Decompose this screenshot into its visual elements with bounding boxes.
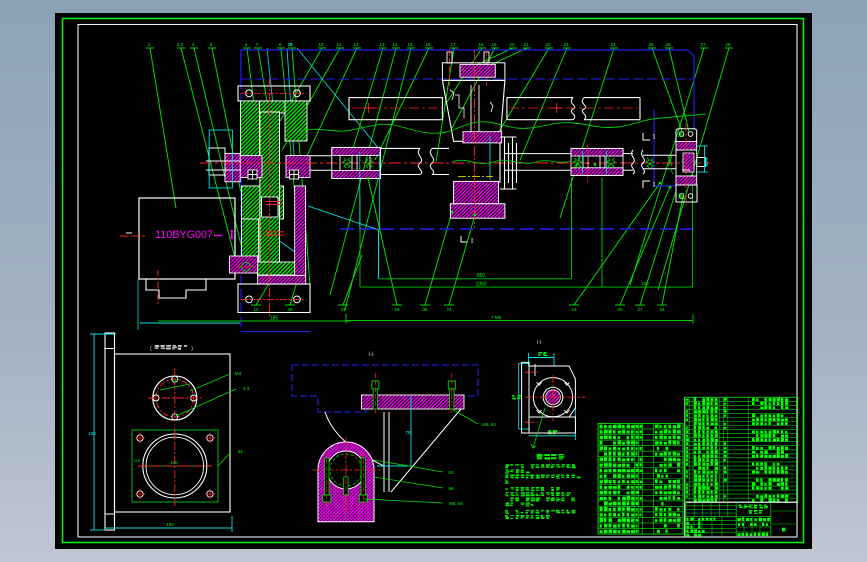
svg-text:20: 20 [509,42,515,47]
svg-text:18: 18 [478,42,484,47]
svg-text:160: 160 [166,522,174,527]
svg-text:28: 28 [725,42,731,47]
svg-text:Ø20: Ø20 [704,157,709,166]
svg-text:15: 15 [407,42,413,47]
svg-text:17: 17 [450,42,456,47]
svg-text:I-I: I-I [537,340,542,346]
svg-text:20: 20 [287,42,293,47]
svg-text:140: 140 [170,460,178,465]
svg-text:I-I: I-I [368,352,374,358]
svg-text:23: 23 [563,42,569,47]
svg-text:24: 24 [610,42,616,47]
svg-text:57: 57 [173,378,179,383]
svg-text:(: ( [150,346,152,352]
svg-text:): ) [191,346,193,352]
svg-text:110BYG007: 110BYG007 [155,229,213,241]
svg-text:1060: 1060 [475,282,486,288]
svg-text:27: 27 [700,42,706,47]
svg-text:248: 248 [641,281,649,286]
svg-text:27: 27 [637,307,643,312]
svg-text:860: 860 [477,273,486,279]
svg-text:11: 11 [337,42,342,47]
svg-text:30: 30 [287,307,293,312]
svg-text:M3: M3 [235,371,242,376]
svg-text:26: 26 [665,42,671,47]
svg-text:13: 13 [379,42,385,47]
svg-text:M5, 62: M5, 62 [482,422,496,427]
svg-text:43: 43 [237,449,243,454]
svg-text:10: 10 [253,307,259,312]
svg-text:I: I [230,229,234,241]
svg-text:25: 25 [648,42,654,47]
svg-text:31: 31 [340,307,346,312]
svg-text:74: 74 [446,307,452,312]
svg-text:35: 35 [422,307,428,312]
svg-text:10: 10 [318,42,324,47]
svg-text:63: 63 [448,470,454,475]
svg-text:78: 78 [405,430,411,435]
svg-text:16: 16 [425,42,431,47]
svg-text:14: 14 [392,42,398,47]
svg-text:22: 22 [545,42,551,47]
svg-text:19: 19 [491,42,497,47]
svg-text:34: 34 [659,307,665,312]
svg-text:12: 12 [353,42,359,47]
svg-text:M5, 66: M5, 66 [449,501,463,506]
svg-text:180: 180 [88,431,96,436]
svg-text:7-M8: 7-M8 [491,315,502,320]
svg-text:185: 185 [270,316,279,322]
svg-text:13: 13 [571,307,577,312]
svg-text:115: 115 [134,458,141,463]
svg-text:18: 18 [394,307,400,312]
svg-text:32: 32 [617,307,623,312]
svg-text:4-3: 4-3 [243,386,250,391]
svg-text:2,3: 2,3 [177,42,184,47]
svg-text:21: 21 [523,42,529,47]
svg-text:66: 66 [448,486,454,491]
